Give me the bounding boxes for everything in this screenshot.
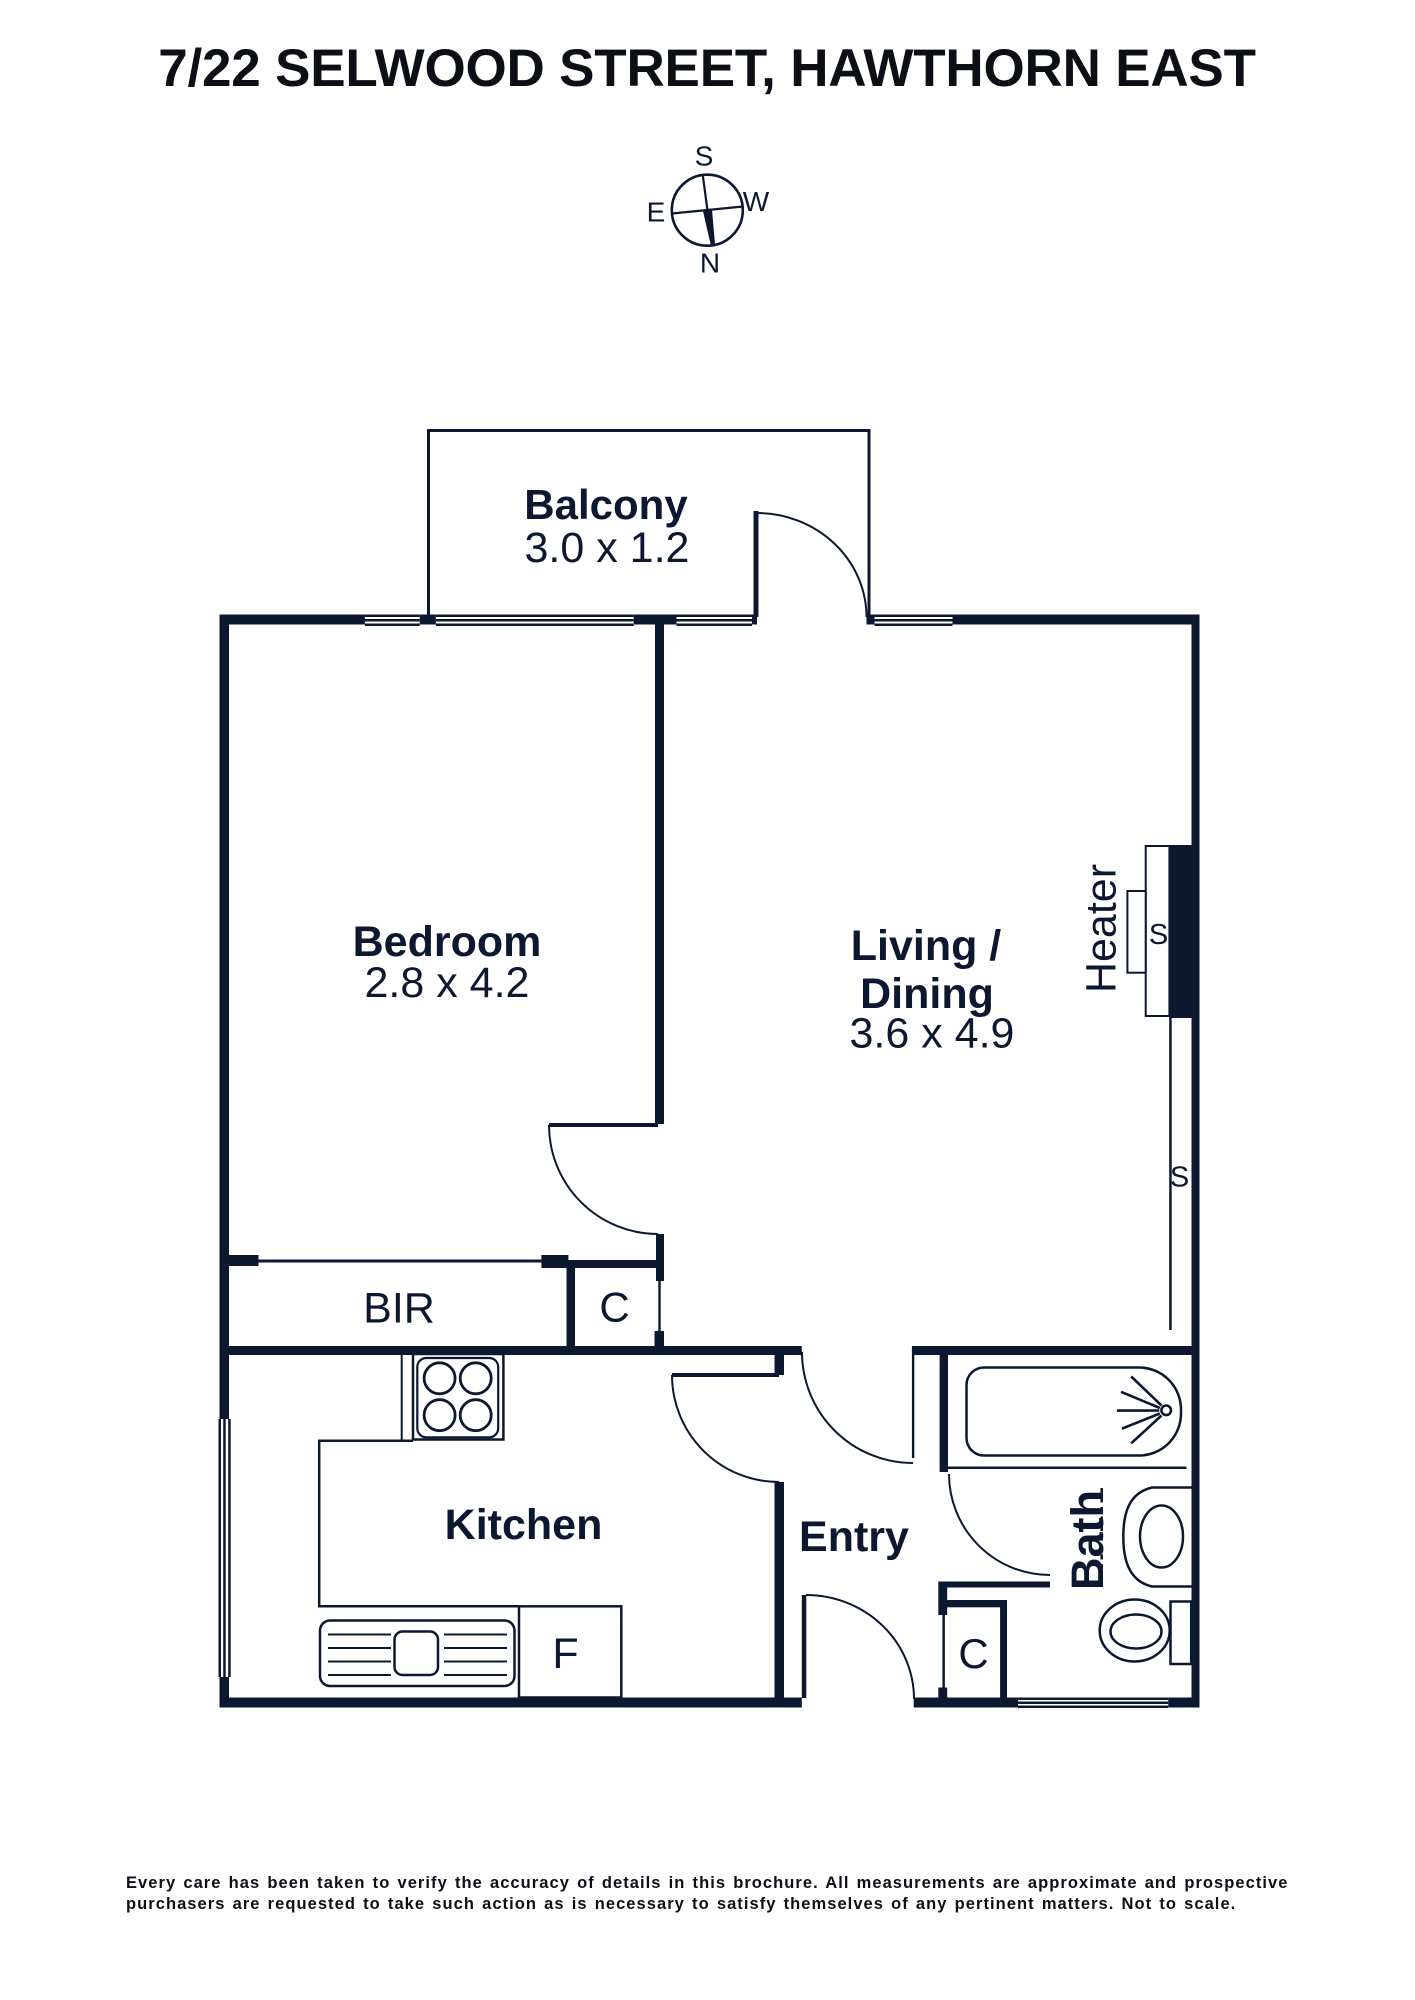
svg-text:BIR: BIR — [363, 1285, 435, 1333]
svg-text:2.8 x 4.2: 2.8 x 4.2 — [365, 959, 530, 1007]
svg-text:W: W — [743, 186, 770, 217]
svg-text:Living /: Living / — [851, 922, 1002, 970]
svg-text:F: F — [552, 1630, 578, 1678]
svg-text:S: S — [695, 141, 714, 172]
svg-text:S: S — [1170, 1162, 1189, 1194]
svg-text:Entry: Entry — [799, 1513, 909, 1561]
svg-text:C: C — [599, 1284, 629, 1331]
svg-text:7/22 SELWOOD STREET, HAWTHORN: 7/22 SELWOOD STREET, HAWTHORN EAST — [158, 39, 1256, 98]
svg-text:3.6 x 4.9: 3.6 x 4.9 — [850, 1010, 1015, 1058]
svg-text:S: S — [1149, 919, 1168, 951]
svg-text:Every care has been taken to v: Every care has been taken to verify the … — [126, 1874, 1289, 1892]
svg-text:N: N — [700, 248, 720, 279]
svg-text:3.0 x 1.2: 3.0 x 1.2 — [525, 524, 690, 572]
svg-text:Heater: Heater — [1078, 864, 1126, 993]
svg-text:Bath: Bath — [1062, 1490, 1113, 1590]
svg-text:purchasers are requested to ta: purchasers are requested to take such ac… — [126, 1895, 1236, 1913]
svg-text:C: C — [958, 1630, 988, 1677]
svg-text:Balcony: Balcony — [524, 481, 688, 528]
svg-text:E: E — [647, 197, 666, 228]
svg-text:Kitchen: Kitchen — [445, 1501, 603, 1549]
